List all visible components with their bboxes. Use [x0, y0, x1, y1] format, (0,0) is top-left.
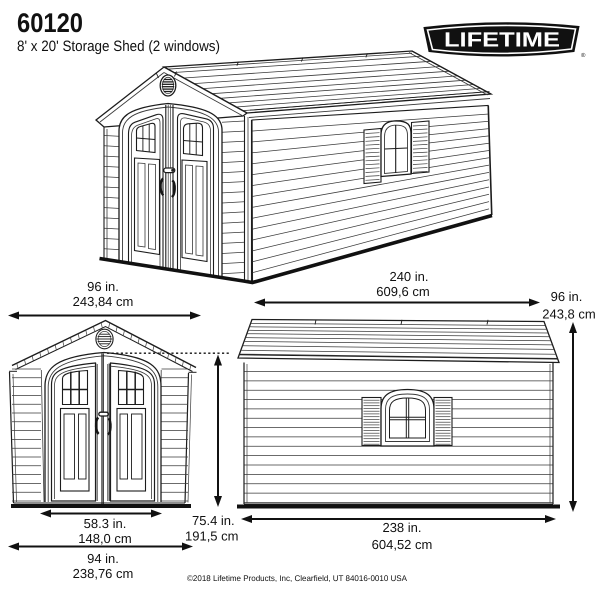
- svg-text:238 in.: 238 in.: [382, 520, 421, 535]
- svg-text:58.3 in.: 58.3 in.: [84, 516, 127, 531]
- svg-text:60120: 60120: [17, 8, 83, 38]
- svg-text:238,76 cm: 238,76 cm: [73, 566, 134, 581]
- svg-text:8' x 20' Storage Shed (2 windo: 8' x 20' Storage Shed (2 windows): [17, 38, 220, 55]
- svg-text:96 in.: 96 in.: [87, 279, 119, 294]
- svg-text:®: ®: [581, 52, 586, 59]
- svg-text:LIFETIME: LIFETIME: [444, 29, 560, 52]
- svg-text:96 in.: 96 in.: [551, 289, 583, 304]
- svg-text:148,0 cm: 148,0 cm: [78, 531, 131, 546]
- svg-text:240 in.: 240 in.: [389, 269, 428, 284]
- svg-text:604,52 cm: 604,52 cm: [372, 537, 433, 552]
- svg-text:609,6 cm: 609,6 cm: [376, 284, 429, 299]
- svg-text:243,84 cm: 243,84 cm: [73, 294, 134, 309]
- svg-text:©2018 Lifetime Products, Inc,: ©2018 Lifetime Products, Inc, Clearfield…: [187, 574, 408, 583]
- svg-text:75.4 in.: 75.4 in.: [192, 513, 235, 528]
- svg-text:191,5 cm: 191,5 cm: [185, 529, 238, 544]
- svg-text:243,8 cm: 243,8 cm: [542, 307, 595, 322]
- svg-text:94 in.: 94 in.: [87, 551, 119, 566]
